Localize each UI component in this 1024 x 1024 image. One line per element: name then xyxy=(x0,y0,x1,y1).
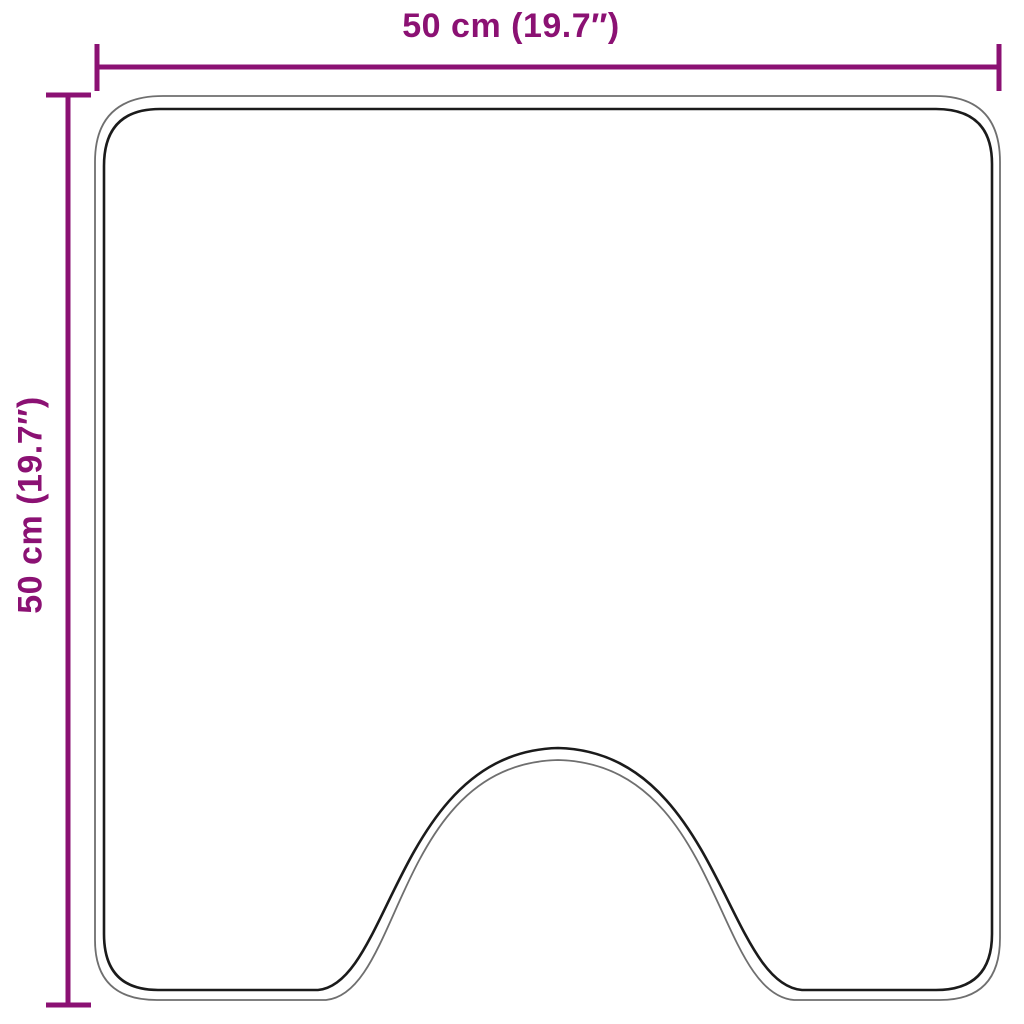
width-dimension-line xyxy=(97,44,999,91)
contour-mat-outline xyxy=(95,96,1000,1000)
product-dimension-diagram: 50 cm (19.7″) 50 cm (19.7″) xyxy=(0,0,1024,1024)
width-dimension-label: 50 cm (19.7″) xyxy=(402,8,619,45)
height-dimension-label: 50 cm (19.7″) xyxy=(12,396,49,613)
mat-dimension-drawing xyxy=(0,0,1024,1024)
mat-outline-outer-stroke xyxy=(95,96,1000,1000)
mat-outline-inner-stroke xyxy=(104,109,992,990)
height-dimension-line xyxy=(46,95,91,1005)
